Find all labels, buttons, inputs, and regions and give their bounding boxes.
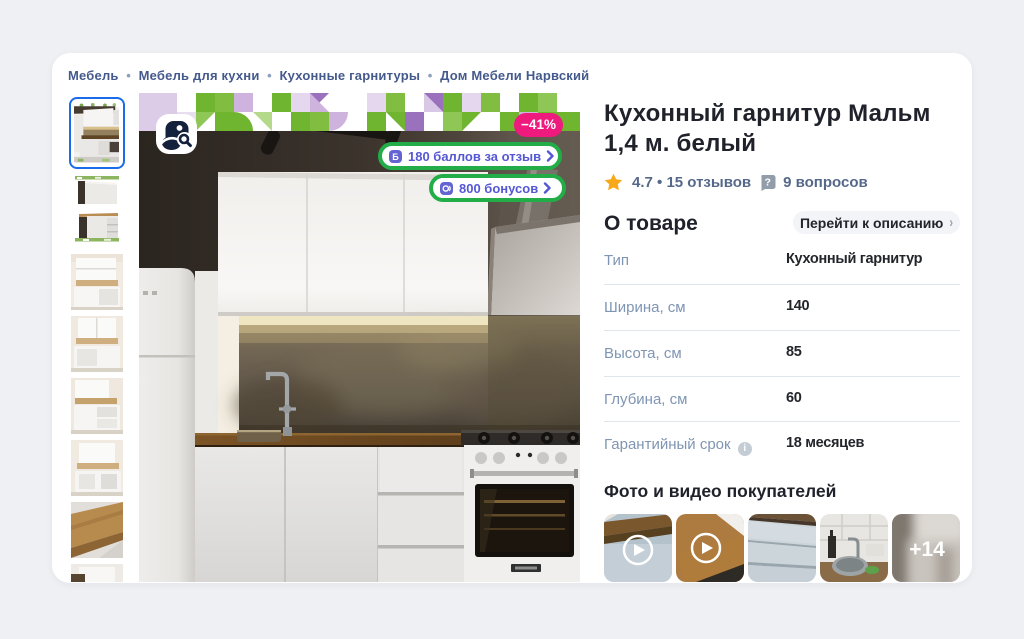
svg-text:Б: Б xyxy=(392,151,399,161)
svg-text:?: ? xyxy=(765,176,771,188)
svg-text:+14: +14 xyxy=(909,538,945,561)
